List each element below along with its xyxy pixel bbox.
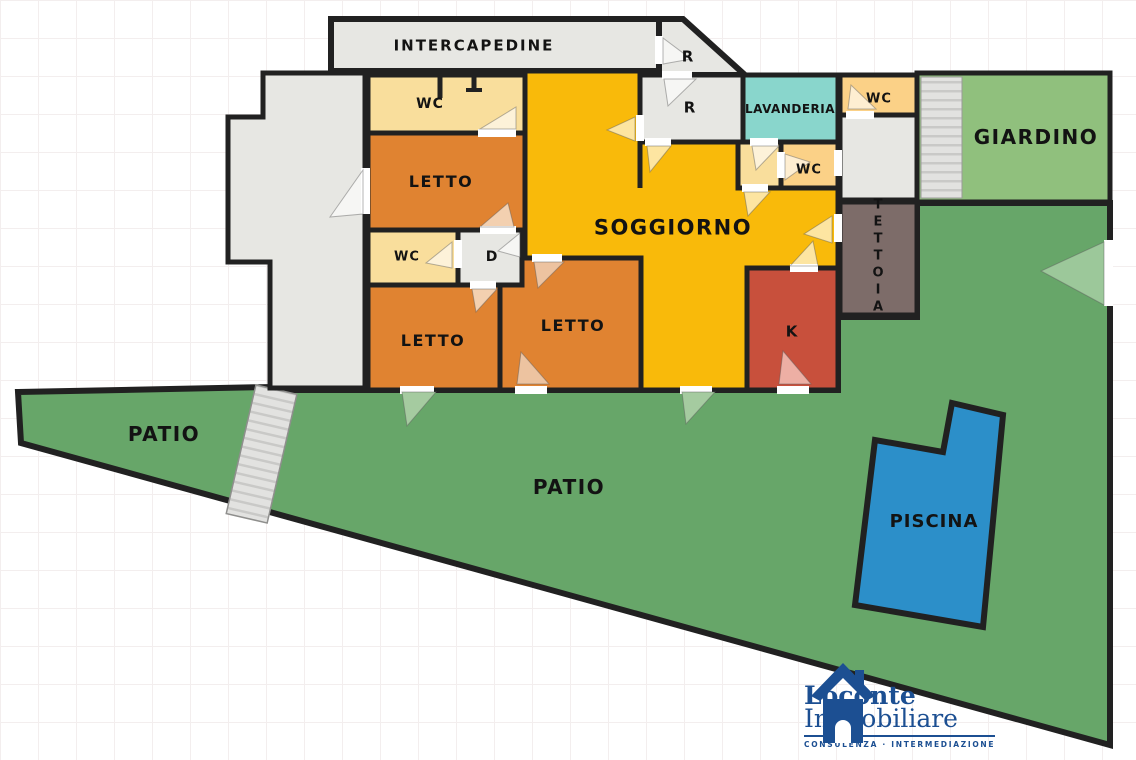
label-wc-top-left: WC [416, 97, 444, 111]
label-giardino: GIARDINO [974, 127, 1099, 147]
hall-top-right [840, 115, 917, 200]
label-wc-small: WC [394, 251, 420, 264]
label-letto-1: LETTO [409, 174, 473, 190]
label-intercapedine: INTERCAPEDINE [394, 39, 555, 54]
label-r-mid: R [684, 101, 697, 116]
label-patio-left: PATIO [128, 424, 200, 444]
label-letto-3: LETTO [541, 318, 605, 334]
house-icon [810, 662, 876, 744]
label-k: K [786, 325, 799, 340]
hallway-left-wing [228, 73, 365, 388]
garden-stairs [921, 77, 962, 198]
label-wc-mid: WC [796, 164, 822, 177]
floor-plan: INTERCAPEDINE R R LAVANDERIA WC GIARDINO… [0, 0, 1136, 760]
label-piscina: PISCINA [890, 513, 979, 531]
label-tettoia: TETTOIA [872, 198, 885, 317]
label-wc-top-right: WC [866, 93, 892, 106]
label-lavanderia: LAVANDERIA [745, 103, 835, 115]
label-letto-2: LETTO [401, 333, 465, 349]
floor-plan-drawing [0, 0, 1136, 760]
agency-logo: Loconte Immobiliare CONSULENZA · INTERME… [810, 662, 995, 749]
label-patio-main: PATIO [533, 477, 605, 497]
label-r-top: R [682, 50, 695, 65]
label-d: D [486, 250, 499, 264]
label-soggiorno: SOGGIORNO [594, 218, 752, 239]
